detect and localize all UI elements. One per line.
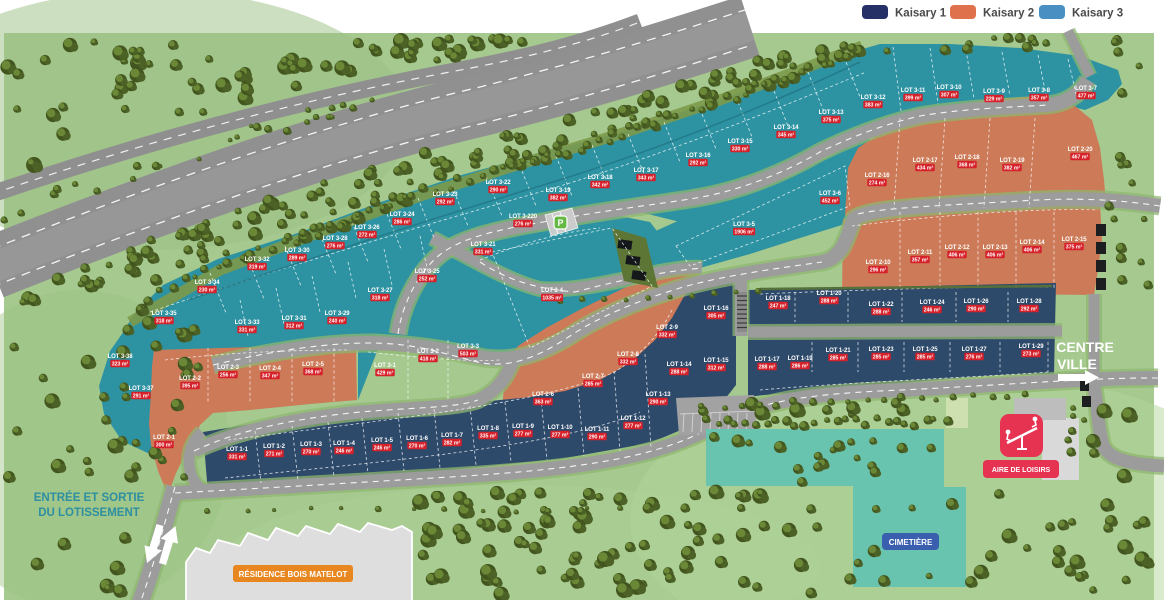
svg-text:285 m²: 285 m² <box>830 355 847 361</box>
svg-text:LOT 1-5: LOT 1-5 <box>371 438 393 444</box>
svg-text:LOT 2-4: LOT 2-4 <box>259 366 281 372</box>
svg-text:LOT 1-7: LOT 1-7 <box>441 433 463 439</box>
svg-text:296 m²: 296 m² <box>870 267 887 273</box>
svg-text:LOT 1-21: LOT 1-21 <box>826 348 852 354</box>
svg-text:LOT 1-28: LOT 1-28 <box>1017 299 1043 305</box>
svg-text:368 m²: 368 m² <box>305 369 322 375</box>
svg-text:272 m²: 272 m² <box>359 232 376 238</box>
svg-text:477 m²: 477 m² <box>1078 93 1095 99</box>
svg-text:285 m²: 285 m² <box>585 381 602 387</box>
svg-text:LOT 2-3: LOT 2-3 <box>217 365 239 371</box>
svg-text:307 m²: 307 m² <box>941 92 958 98</box>
svg-text:LOT 3-19: LOT 3-19 <box>546 188 572 194</box>
svg-text:331 m²: 331 m² <box>239 327 256 333</box>
svg-text:246 m²: 246 m² <box>924 307 941 313</box>
svg-text:395 m²: 395 m² <box>182 383 199 389</box>
svg-text:292 m²: 292 m² <box>690 160 707 166</box>
svg-text:LOT 3-18: LOT 3-18 <box>588 175 614 181</box>
svg-text:277 m²: 277 m² <box>625 423 642 429</box>
svg-text:276 m²: 276 m² <box>327 243 344 249</box>
svg-text:LOT 2-2: LOT 2-2 <box>179 376 201 382</box>
svg-text:345 m²: 345 m² <box>778 132 795 138</box>
svg-text:LOT 1-6: LOT 1-6 <box>406 436 428 442</box>
svg-text:LOT 3-27: LOT 3-27 <box>368 288 394 294</box>
svg-text:318 m²: 318 m² <box>156 318 173 324</box>
svg-text:292 m²: 292 m² <box>437 199 454 205</box>
svg-text:LOT 3-6: LOT 3-6 <box>819 191 841 197</box>
svg-text:418 m²: 418 m² <box>420 356 437 362</box>
svg-text:LOT 3-8: LOT 3-8 <box>1028 88 1050 94</box>
svg-text:282 m²: 282 m² <box>444 440 461 446</box>
svg-text:LOT 3-33: LOT 3-33 <box>235 320 261 326</box>
svg-text:LOT 1-12: LOT 1-12 <box>621 416 647 422</box>
svg-text:286 m²: 286 m² <box>394 219 411 225</box>
svg-text:LOT 1-8: LOT 1-8 <box>477 426 499 432</box>
svg-text:382 m²: 382 m² <box>550 195 567 201</box>
svg-text:434 m²: 434 m² <box>917 165 934 171</box>
svg-text:332 m²: 332 m² <box>659 332 676 338</box>
svg-text:305 m²: 305 m² <box>708 313 725 319</box>
svg-text:LOT 3-220: LOT 3-220 <box>509 214 538 220</box>
svg-text:277 m²: 277 m² <box>515 431 532 437</box>
svg-text:312 m²: 312 m² <box>708 365 725 371</box>
svg-text:LOT 3-32: LOT 3-32 <box>245 257 271 263</box>
svg-text:290 m²: 290 m² <box>589 434 606 440</box>
svg-text:LOT 2-12: LOT 2-12 <box>945 245 971 251</box>
svg-text:252 m²: 252 m² <box>419 276 436 282</box>
svg-text:342 m²: 342 m² <box>592 182 609 188</box>
svg-text:LOT 1-22: LOT 1-22 <box>869 302 895 308</box>
svg-text:LOT 3-16: LOT 3-16 <box>686 153 712 159</box>
svg-text:LOT 1-23: LOT 1-23 <box>869 347 895 353</box>
svg-text:LOT 1-15: LOT 1-15 <box>704 358 730 364</box>
svg-text:LOT 3-38: LOT 3-38 <box>108 354 134 360</box>
svg-text:1906 m²: 1906 m² <box>734 229 754 235</box>
svg-text:429 m²: 429 m² <box>377 370 394 376</box>
svg-text:LOT 1-20: LOT 1-20 <box>817 291 843 297</box>
svg-text:LOT 3-2: LOT 3-2 <box>417 349 439 355</box>
svg-text:LOT 1-19: LOT 1-19 <box>788 356 814 362</box>
svg-text:271 m²: 271 m² <box>266 451 283 457</box>
svg-text:276 m²: 276 m² <box>515 221 532 227</box>
svg-text:406 m²: 406 m² <box>1024 247 1041 253</box>
svg-text:LOT 3-7: LOT 3-7 <box>1075 86 1097 92</box>
svg-text:330 m²: 330 m² <box>732 146 749 152</box>
svg-text:452 m²: 452 m² <box>822 198 839 204</box>
svg-text:LOT 1-17: LOT 1-17 <box>755 357 781 363</box>
svg-text:399 m²: 399 m² <box>905 95 922 101</box>
svg-text:273 m²: 273 m² <box>1023 351 1040 357</box>
svg-text:LOT 2-7: LOT 2-7 <box>582 374 604 380</box>
svg-text:LOT 1-16: LOT 1-16 <box>704 306 730 312</box>
svg-text:LOT 1-18: LOT 1-18 <box>766 296 792 302</box>
svg-text:LOT 3-12: LOT 3-12 <box>861 95 887 101</box>
svg-text:229 m²: 229 m² <box>986 96 1003 102</box>
svg-text:LOT 3-5: LOT 3-5 <box>733 222 755 228</box>
svg-text:LOT 1-14: LOT 1-14 <box>667 362 693 368</box>
svg-text:LOT 2-18: LOT 2-18 <box>955 155 981 161</box>
svg-text:LOT 3-10: LOT 3-10 <box>937 85 963 91</box>
svg-text:LOT 3-35: LOT 3-35 <box>152 311 178 317</box>
svg-text:LOT 1-1: LOT 1-1 <box>226 447 248 453</box>
svg-text:LOT 3-31: LOT 3-31 <box>282 316 308 322</box>
svg-text:LOT 2-9: LOT 2-9 <box>656 325 678 331</box>
svg-text:Kaisary 2: Kaisary 2 <box>983 8 1034 20</box>
svg-text:LOT 3-37: LOT 3-37 <box>129 386 155 392</box>
svg-text:LOT 1-25: LOT 1-25 <box>913 347 939 353</box>
svg-text:292 m²: 292 m² <box>1021 306 1038 312</box>
svg-text:270 m²: 270 m² <box>303 449 320 455</box>
svg-text:LOT 3-1: LOT 3-1 <box>374 363 396 369</box>
svg-text:LOT 1-9: LOT 1-9 <box>512 424 534 430</box>
svg-text:288 m²: 288 m² <box>671 369 688 375</box>
svg-text:LOT 3-28: LOT 3-28 <box>323 236 349 242</box>
svg-text:AIRE DE LOISIRS: AIRE DE LOISIRS <box>992 467 1051 474</box>
svg-text:Kaisary 3: Kaisary 3 <box>1072 8 1123 20</box>
svg-text:LOT 1-13: LOT 1-13 <box>646 392 672 398</box>
svg-text:LOT 2-8: LOT 2-8 <box>617 352 639 358</box>
svg-text:230 m²: 230 m² <box>199 287 216 293</box>
svg-text:288 m²: 288 m² <box>759 364 776 370</box>
svg-text:503 m²: 503 m² <box>460 351 477 357</box>
svg-text:P: P <box>557 218 563 228</box>
svg-text:LOT 2-6: LOT 2-6 <box>532 392 554 398</box>
svg-text:276 m²: 276 m² <box>966 354 983 360</box>
svg-text:LOT 1-29: LOT 1-29 <box>1019 344 1045 350</box>
svg-text:ENTRÉE ET SORTIE: ENTRÉE ET SORTIE <box>34 491 145 504</box>
svg-text:357 m²: 357 m² <box>1031 95 1048 101</box>
svg-text:LOT 2-14: LOT 2-14 <box>1020 240 1046 246</box>
svg-text:Kaisary 1: Kaisary 1 <box>895 8 947 20</box>
svg-text:288 m²: 288 m² <box>821 298 838 304</box>
svg-text:331 m²: 331 m² <box>229 454 246 460</box>
svg-text:LOT 1-4: LOT 1-4 <box>333 441 355 447</box>
svg-text:LOT 2-10: LOT 2-10 <box>866 260 892 266</box>
svg-text:LOT 1-10: LOT 1-10 <box>548 425 574 431</box>
svg-text:368 m²: 368 m² <box>959 162 976 168</box>
svg-text:LOT 1-2: LOT 1-2 <box>263 444 285 450</box>
svg-text:LOT 2-5: LOT 2-5 <box>302 362 324 368</box>
svg-text:300 m²: 300 m² <box>156 442 173 448</box>
svg-text:LOT 2-1: LOT 2-1 <box>153 435 175 441</box>
svg-text:LOT 1-3: LOT 1-3 <box>300 442 322 448</box>
svg-text:LOT 2-15: LOT 2-15 <box>1062 237 1088 243</box>
svg-text:LOT 3-34: LOT 3-34 <box>195 280 221 286</box>
svg-text:RÉSIDENCE BOIS MATELOT: RÉSIDENCE BOIS MATELOT <box>239 570 348 579</box>
svg-text:363 m²: 363 m² <box>535 399 552 405</box>
svg-text:406 m²: 406 m² <box>987 252 1004 258</box>
svg-text:256 m²: 256 m² <box>220 372 237 378</box>
svg-text:LOT 3-22: LOT 3-22 <box>486 180 512 186</box>
svg-text:347 m²: 347 m² <box>262 373 279 379</box>
svg-text:LOT 3-26: LOT 3-26 <box>355 225 381 231</box>
svg-text:1035 m²: 1035 m² <box>542 295 562 301</box>
svg-text:LOT 2-13: LOT 2-13 <box>983 245 1009 251</box>
svg-text:467 m²: 467 m² <box>1072 154 1089 160</box>
svg-text:LOT 3-30: LOT 3-30 <box>285 248 311 254</box>
svg-text:LOT 2-11: LOT 2-11 <box>908 250 933 256</box>
svg-text:LOT 2-17: LOT 2-17 <box>913 158 939 164</box>
svg-text:331 m²: 331 m² <box>475 249 492 255</box>
svg-text:LOT 1-11: LOT 1-11 <box>585 427 610 433</box>
svg-text:246 m²: 246 m² <box>374 445 391 451</box>
svg-text:375 m²: 375 m² <box>1066 244 1083 250</box>
svg-text:LOT 2-20: LOT 2-20 <box>1068 147 1094 153</box>
svg-text:382 m²: 382 m² <box>1004 165 1021 171</box>
svg-text:332 m²: 332 m² <box>620 359 637 365</box>
svg-text:335 m²: 335 m² <box>480 433 497 439</box>
svg-text:323 m²: 323 m² <box>112 361 129 367</box>
svg-text:LOT 1-27: LOT 1-27 <box>962 347 988 353</box>
svg-text:LOT 3-13: LOT 3-13 <box>819 110 845 116</box>
svg-text:270 m²: 270 m² <box>409 443 426 449</box>
svg-text:383 m²: 383 m² <box>865 102 882 108</box>
svg-text:CENTRE: CENTRE <box>1056 339 1114 355</box>
svg-text:247 m²: 247 m² <box>770 303 787 309</box>
svg-text:290 m²: 290 m² <box>650 399 667 405</box>
svg-text:LOT 3-23: LOT 3-23 <box>433 192 459 198</box>
svg-text:291 m²: 291 m² <box>133 393 150 399</box>
svg-text:DU LOTISSEMENT: DU LOTISSEMENT <box>38 507 140 519</box>
svg-text:246 m²: 246 m² <box>336 448 353 454</box>
svg-text:274 m²: 274 m² <box>869 180 886 186</box>
svg-text:285 m²: 285 m² <box>873 354 890 360</box>
svg-text:343 m²: 343 m² <box>638 175 655 181</box>
svg-text:289 m²: 289 m² <box>289 255 306 261</box>
svg-text:LOT 2-16: LOT 2-16 <box>865 173 891 179</box>
svg-text:LOT 3-14: LOT 3-14 <box>774 125 800 131</box>
svg-text:LOT 3-24: LOT 3-24 <box>390 212 416 218</box>
svg-text:318 m²: 318 m² <box>372 295 389 301</box>
svg-text:357 m²: 357 m² <box>912 257 929 263</box>
svg-text:CIMETIÈRE: CIMETIÈRE <box>889 538 933 547</box>
svg-text:240 m²: 240 m² <box>329 318 346 324</box>
svg-text:290 m²: 290 m² <box>968 306 985 312</box>
svg-text:LOT 3-29: LOT 3-29 <box>325 311 351 317</box>
svg-text:VILLE: VILLE <box>1057 356 1097 372</box>
svg-text:LOT 3-11: LOT 3-11 <box>901 88 926 94</box>
svg-text:290 m²: 290 m² <box>490 187 507 193</box>
svg-text:375 m²: 375 m² <box>823 117 840 123</box>
svg-text:LOT 1-26: LOT 1-26 <box>964 299 990 305</box>
svg-text:312 m²: 312 m² <box>286 323 303 329</box>
svg-text:406 m²: 406 m² <box>949 252 966 258</box>
svg-text:LOT 3-9: LOT 3-9 <box>983 89 1005 95</box>
svg-text:286 m²: 286 m² <box>792 363 809 369</box>
svg-text:LOT 1-24: LOT 1-24 <box>920 300 946 306</box>
svg-text:LOT 3-21: LOT 3-21 <box>471 242 497 248</box>
svg-text:LOT 3-4: LOT 3-4 <box>541 288 563 294</box>
svg-text:LOT 3-15: LOT 3-15 <box>728 139 754 145</box>
svg-text:LOT 3-17: LOT 3-17 <box>634 168 660 174</box>
svg-text:285 m²: 285 m² <box>917 354 934 360</box>
svg-text:LOT 2-19: LOT 2-19 <box>1000 158 1026 164</box>
svg-text:LOT 3-3: LOT 3-3 <box>457 344 479 350</box>
svg-text:LOT 3-25: LOT 3-25 <box>415 269 441 275</box>
svg-text:277 m²: 277 m² <box>552 432 569 438</box>
svg-text:319 m²: 319 m² <box>249 264 266 270</box>
svg-text:288 m²: 288 m² <box>873 309 890 315</box>
